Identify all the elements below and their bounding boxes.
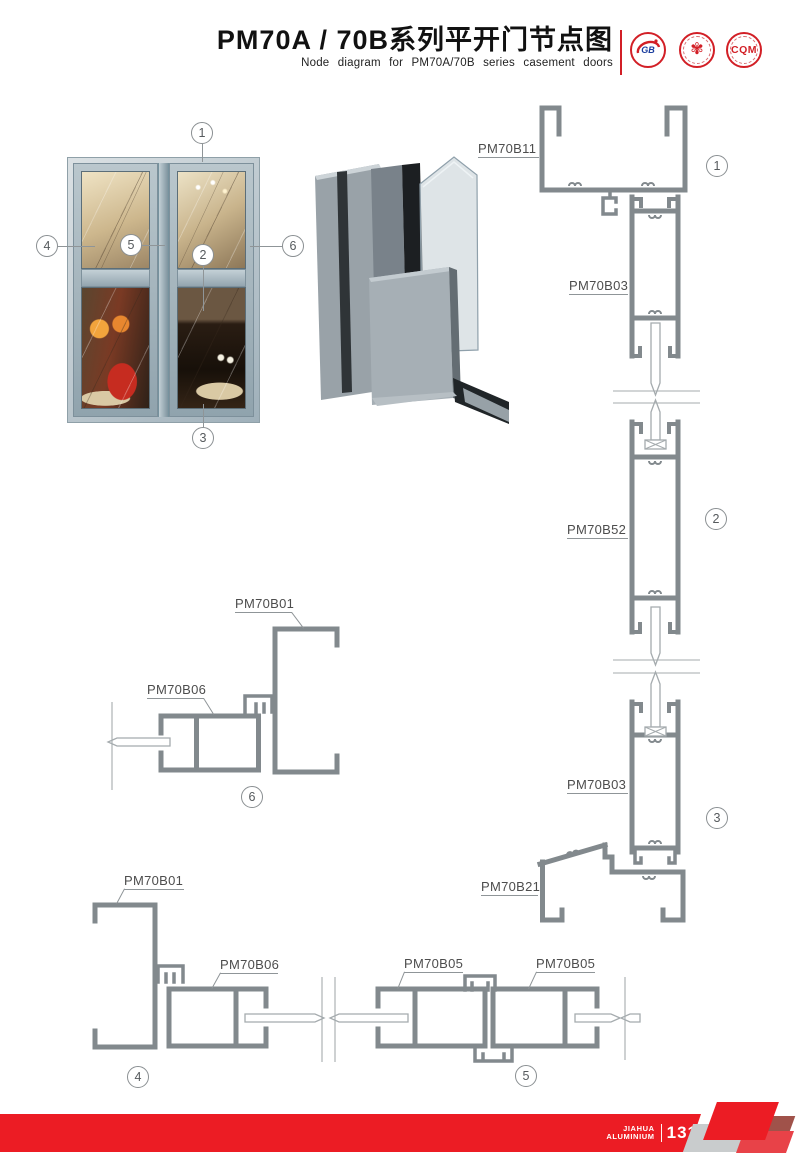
footer-brand-line2: ALUMINIUM <box>606 1133 654 1141</box>
profile-label: PM70B05 <box>536 957 595 973</box>
leader-line <box>58 246 95 247</box>
profile-label: PM70B52 <box>567 523 628 539</box>
node6-section-diagram <box>95 585 355 815</box>
leader-line <box>202 144 203 162</box>
center-stile <box>158 163 169 417</box>
profile-label: PM70B01 <box>235 597 292 613</box>
door-photo <box>67 157 260 423</box>
leader-line <box>203 404 204 427</box>
photo-callout-1: 1 <box>191 122 213 144</box>
catalog-page: PM70A / 70B系列平开门节点图 Node diagram for PM7… <box>0 0 800 1167</box>
quality-certification-logo-icon: ✾ <box>679 32 715 68</box>
leader-line <box>142 245 165 246</box>
profile-label: PM70B05 <box>404 957 463 973</box>
leader-line <box>203 266 204 311</box>
photo-callout-3: 3 <box>192 427 214 449</box>
profile-label: PM70B06 <box>220 958 278 974</box>
profile-label: PM70B11 <box>478 142 539 158</box>
photo-callout-4: 4 <box>36 235 58 257</box>
vertical-section-diagram <box>470 95 740 940</box>
mid-rail-left <box>81 269 150 287</box>
profile-label: PM70B21 <box>481 880 538 896</box>
profile-label: PM70B01 <box>124 874 184 890</box>
cqm-logo-icon: CQM <box>726 32 762 68</box>
node-callout-5: 5 <box>515 1065 537 1087</box>
node-callout-4: 4 <box>127 1066 149 1088</box>
cert-flower-icon: ✾ <box>690 42 703 58</box>
page-title: PM70A / 70B系列平开门节点图 <box>0 25 613 55</box>
photo-callout-5: 5 <box>120 234 142 256</box>
page-header: PM70A / 70B系列平开门节点图 Node diagram for PM7… <box>0 25 613 69</box>
page-subtitle: Node diagram for PM70A/70B series caseme… <box>0 57 613 69</box>
horizontal-section-diagram <box>60 865 660 1095</box>
profile-label: PM70B06 <box>147 683 204 699</box>
gb-certification-logo-icon: GB <box>630 32 666 68</box>
mid-rail-right <box>177 269 246 287</box>
door-leaf-left <box>73 163 158 417</box>
glass-pane-lower-left <box>81 287 150 409</box>
photo-callout-2: 2 <box>192 244 214 266</box>
cqm-logo-text: CQM <box>731 44 757 56</box>
node-callout-2: 2 <box>705 508 727 530</box>
photo-callout-6: 6 <box>282 235 304 257</box>
node-callout-1: 1 <box>706 155 728 177</box>
leader-line <box>250 246 282 247</box>
profile-label: PM70B03 <box>569 279 628 295</box>
footer-divider <box>661 1124 662 1142</box>
glass-pane-upper-left <box>81 171 150 269</box>
node-callout-3: 3 <box>706 807 728 829</box>
gb-logo-text: GB <box>641 45 655 55</box>
node-callout-6: 6 <box>241 786 263 808</box>
footer-band: JIAHUA ALUMINIUM 131 <box>0 1114 701 1152</box>
door-leaf-right <box>169 163 254 417</box>
footer-brand: JIAHUA ALUMINIUM <box>606 1125 654 1141</box>
header-divider <box>620 30 622 75</box>
glass-pane-lower-right <box>177 287 246 409</box>
profile-label: PM70B03 <box>567 778 628 794</box>
